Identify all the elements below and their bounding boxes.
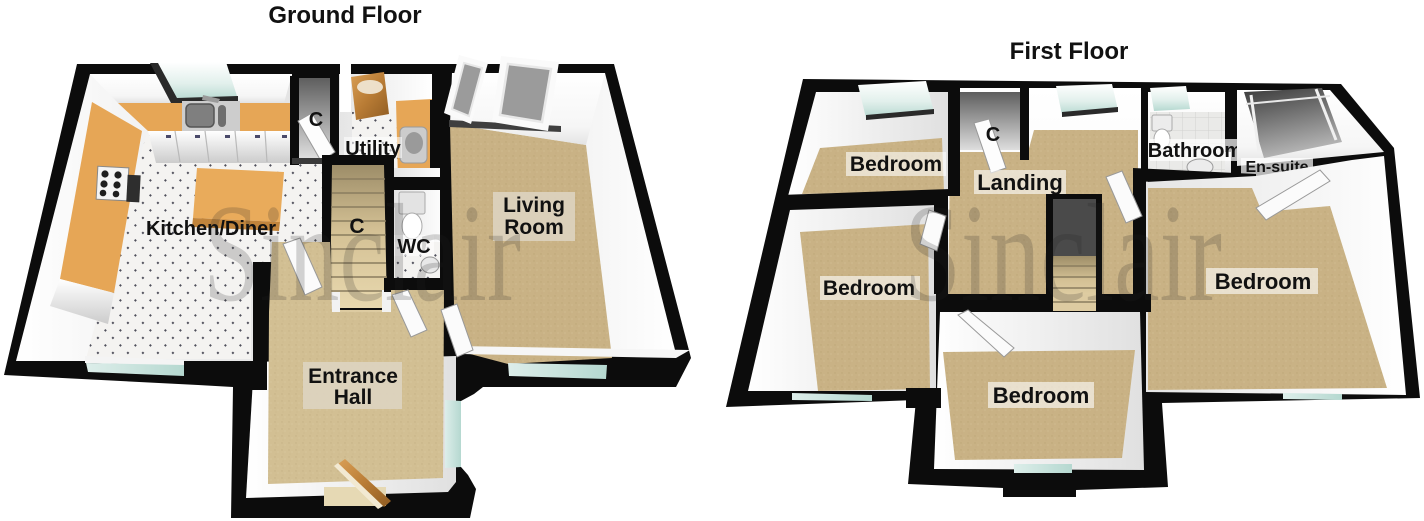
- svg-text:C: C: [986, 124, 1000, 146]
- svg-text:Bedroom: Bedroom: [993, 383, 1090, 408]
- svg-text:Entrance: Entrance: [308, 365, 398, 388]
- svg-text:Bedroom: Bedroom: [850, 153, 942, 176]
- svg-text:Bedroom: Bedroom: [823, 277, 915, 300]
- svg-text:Sinclair: Sinclair: [203, 175, 521, 330]
- svg-text:C: C: [309, 109, 323, 131]
- svg-text:Sinclair: Sinclair: [904, 175, 1222, 330]
- svg-text:First Floor: First Floor: [1010, 38, 1129, 65]
- svg-text:Ground Floor: Ground Floor: [268, 2, 421, 29]
- svg-text:Bathroom: Bathroom: [1148, 140, 1242, 162]
- svg-text:Bedroom: Bedroom: [1215, 269, 1312, 294]
- svg-text:Hall: Hall: [334, 386, 373, 409]
